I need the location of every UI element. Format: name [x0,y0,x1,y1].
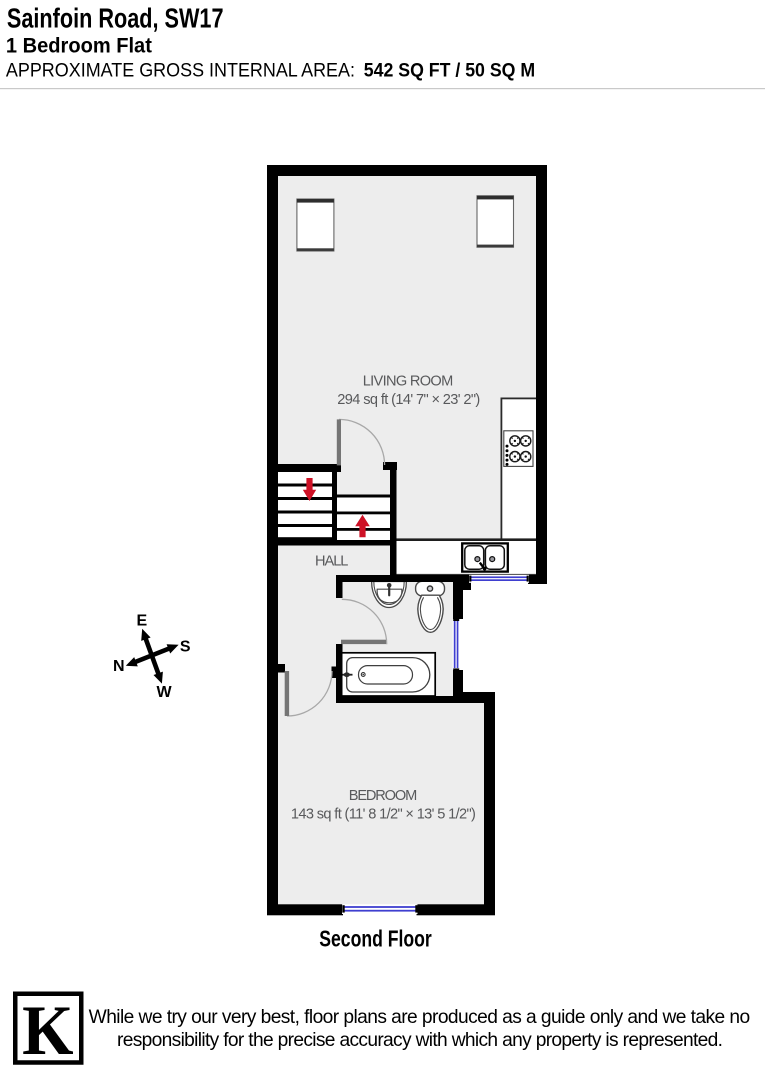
svg-text:While we try our very best, fl: While we try our very best, floor plans … [89,1007,751,1028]
svg-text:K: K [22,992,73,1070]
svg-text:responsibility for the precise: responsibility for the precise accuracy … [117,1030,723,1051]
